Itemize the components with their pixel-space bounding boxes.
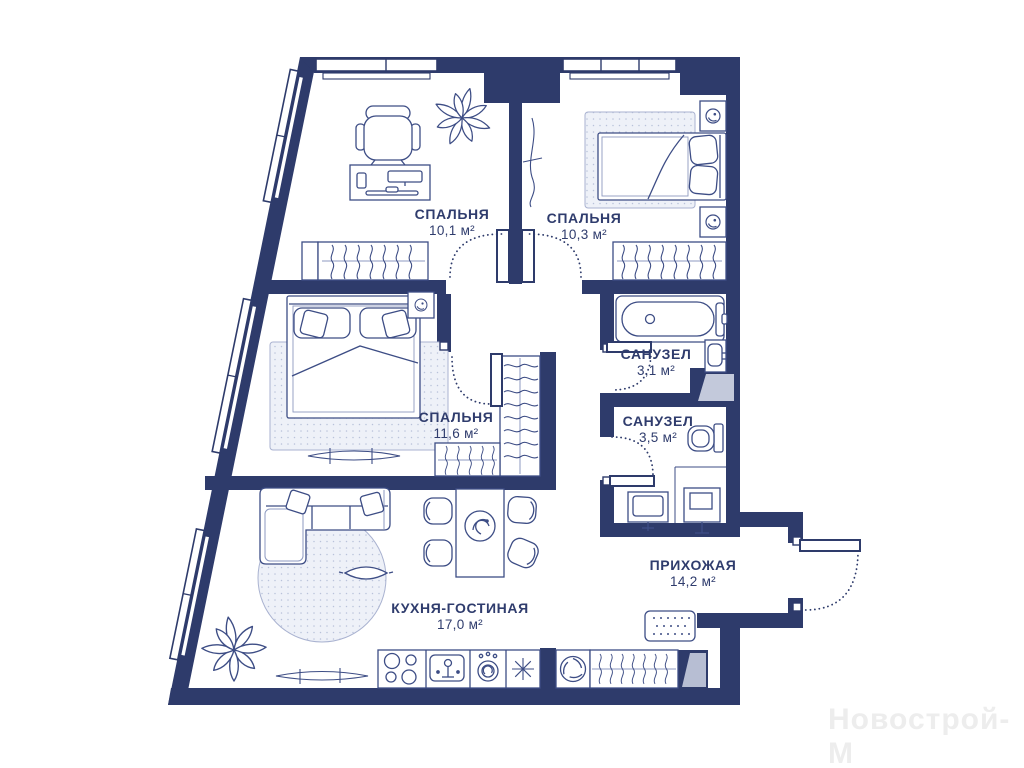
chair	[424, 498, 452, 524]
room-label-bedroom-1: СПАЛЬНЯ 10,1 м²	[415, 206, 490, 239]
bathtub	[616, 296, 727, 342]
room-area: 3,5 м²	[623, 430, 694, 446]
room-area: 3,1 м²	[621, 363, 692, 379]
room-label-bedroom-3: СПАЛЬНЯ 11,6 м²	[419, 409, 494, 442]
room-name: СПАЛЬНЯ	[547, 210, 622, 226]
bedroom-2-furniture	[523, 101, 726, 280]
nightstand	[408, 292, 434, 318]
room-name: СПАЛЬНЯ	[419, 409, 494, 425]
hallway-furniture	[556, 611, 695, 688]
kitchen-living-furniture	[196, 488, 541, 688]
chair	[507, 496, 537, 524]
window-top-right	[563, 59, 676, 79]
bed-double	[598, 133, 726, 200]
chair	[505, 536, 541, 571]
room-name: САНУЗЕЛ	[623, 413, 694, 429]
bed-double	[287, 296, 420, 418]
curtain-icon	[276, 668, 368, 684]
window-top-left	[316, 59, 437, 79]
entry-door	[793, 537, 860, 611]
floor-plan: СПАЛЬНЯ 10,1 м² СПАЛЬНЯ 10,3 м² СПАЛЬНЯ …	[0, 0, 1024, 768]
wardrobe-bedroom-1	[302, 242, 428, 280]
room-area: 11,6 м²	[419, 426, 494, 442]
floor-plan-svg	[0, 0, 1024, 768]
office-chair	[356, 106, 420, 165]
wardrobe-bedroom-2	[613, 242, 726, 280]
room-name: СПАЛЬНЯ	[415, 206, 490, 222]
room-name: КУХНЯ-ГОСТИНАЯ	[391, 600, 528, 616]
kitchen-appliance-row	[378, 650, 540, 688]
room-area: 10,1 м²	[415, 223, 490, 239]
room-label-kitchen-living: КУХНЯ-ГОСТИНАЯ 17,0 м²	[391, 600, 528, 633]
hall-closet	[590, 650, 678, 688]
room-area: 14,2 м²	[650, 574, 737, 590]
freezer-icon	[512, 658, 534, 680]
washing-machine-icon	[556, 650, 590, 688]
sink	[705, 340, 726, 372]
dining-table	[456, 489, 504, 577]
nightstand	[700, 101, 726, 131]
room-label-bedroom-2: СПАЛЬНЯ 10,3 м²	[547, 210, 622, 243]
room-name: ПРИХОЖАЯ	[650, 557, 737, 573]
room-label-hallway: ПРИХОЖАЯ 14,2 м²	[650, 557, 737, 590]
room-label-bathroom-1: САНУЗЕЛ 3,1 м²	[621, 346, 692, 379]
doormat	[645, 611, 695, 641]
room-name: САНУЗЕЛ	[621, 346, 692, 362]
chair	[424, 540, 452, 566]
curtain-icon	[523, 118, 542, 207]
wardrobe-bedroom-3-horizontal	[435, 443, 500, 476]
nightstand	[700, 207, 726, 237]
room-area: 17,0 м²	[391, 617, 528, 633]
desk	[350, 165, 430, 200]
room-area: 10,3 м²	[547, 227, 622, 243]
wardrobe-bedroom-3-vertical	[500, 356, 540, 476]
watermark: Новострой-М	[828, 703, 1024, 768]
plant-icon	[196, 612, 271, 687]
room-label-bathroom-2: САНУЗЕЛ 3,5 м²	[623, 413, 694, 446]
bedroom-1-furniture	[302, 81, 499, 280]
